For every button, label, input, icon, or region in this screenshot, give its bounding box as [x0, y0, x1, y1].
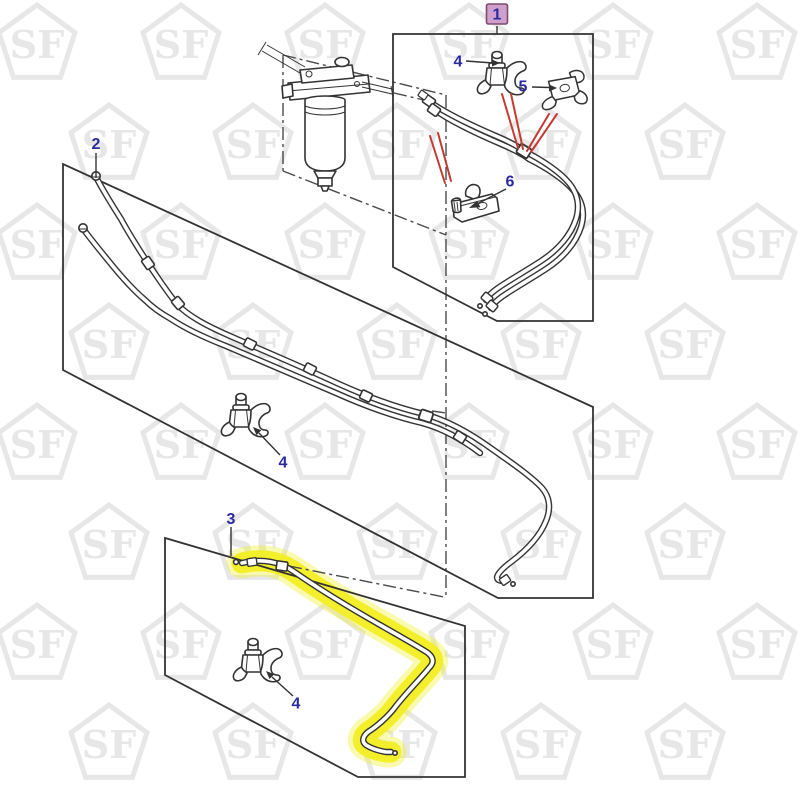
watermark-badge [71, 305, 147, 377]
pipe-clip-4-box3 [233, 639, 282, 682]
callout-2-label: 2 [92, 136, 101, 153]
watermark-badge [719, 605, 795, 677]
watermark-badge [575, 405, 651, 477]
callout-4-box2-label: 4 [279, 455, 288, 472]
watermark-badge [359, 505, 435, 577]
watermark-badge [647, 305, 723, 377]
watermark-layer [0, 5, 795, 777]
callout-5-label: 5 [519, 79, 528, 96]
watermark-badge [143, 405, 219, 477]
watermark-badge [359, 105, 435, 177]
watermark-badge [143, 605, 219, 677]
callout-4-box3[interactable]: 4 [266, 671, 301, 713]
watermark-badge [71, 705, 147, 777]
watermark-badge [0, 605, 75, 677]
watermark-badge [503, 705, 579, 777]
watermark-badge [0, 405, 75, 477]
watermark-badge [71, 105, 147, 177]
callout-4-box3-leader [272, 677, 293, 696]
callout-4-box1-label: 4 [454, 54, 463, 71]
watermark-badge [0, 5, 75, 77]
watermark-badge [647, 105, 723, 177]
watermark-badge [215, 105, 291, 177]
callout-5-leader [532, 87, 550, 88]
watermark-badge [503, 305, 579, 377]
callout-6-label: 6 [506, 174, 515, 191]
callout-1-label: 1 [493, 7, 502, 24]
callout-3-label: 3 [227, 511, 236, 528]
watermark-badge [719, 405, 795, 477]
watermark-badge [647, 705, 723, 777]
watermark-badge [71, 505, 147, 577]
watermark-badge [287, 405, 363, 477]
watermark-badge [215, 705, 291, 777]
callout-4-box3-label: 4 [292, 696, 301, 713]
watermark-badge [575, 205, 651, 277]
watermark-badge [719, 5, 795, 77]
watermark-badge [503, 505, 579, 577]
pipe-clip-4-box2 [221, 394, 270, 437]
watermark-badge [647, 505, 723, 577]
watermark-badge [359, 305, 435, 377]
watermark-badge [287, 205, 363, 277]
watermark-badge [575, 5, 651, 77]
parts-diagram-canvas: SF [0, 0, 800, 800]
watermark-badge [575, 605, 651, 677]
callout-4-box2-leader [259, 433, 280, 455]
watermark-badge [719, 205, 795, 277]
parts-diagram-page: SF [0, 0, 800, 800]
watermark-badge [143, 205, 219, 277]
watermark-badge [143, 5, 219, 77]
